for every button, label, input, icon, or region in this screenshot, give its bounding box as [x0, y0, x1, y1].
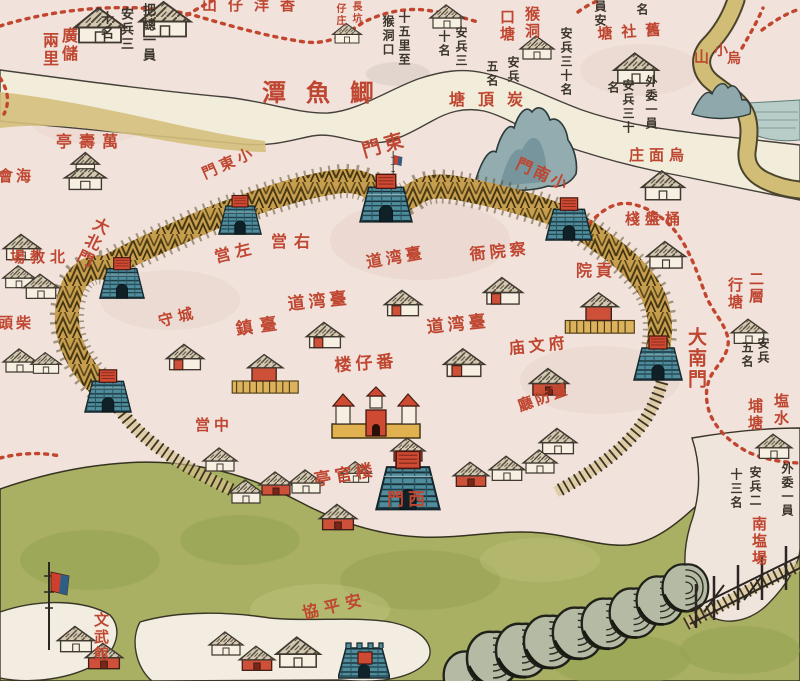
antique-map-of-taiwan-prefecture: 山仔洋香廣儲兩里把總一員安兵三十名長坑仔庄十五里至猴洞口安兵三十名猴洞口塘安兵三… [0, 0, 800, 681]
map-canvas [0, 0, 800, 681]
fort-icon [338, 643, 390, 678]
